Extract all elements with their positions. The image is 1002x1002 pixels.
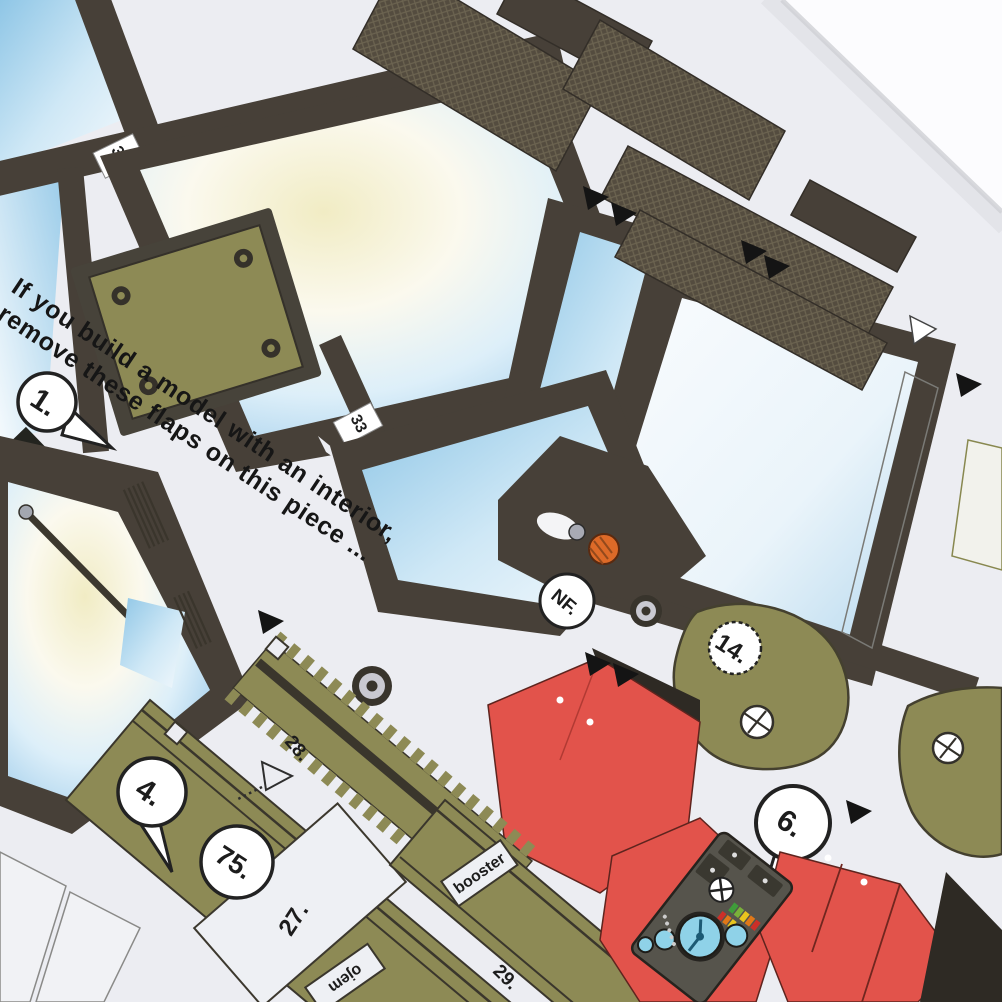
handle-pivot: [569, 524, 585, 540]
sheet-scene: 33 33: [0, 0, 1002, 1002]
photo-of-paper-model-sheet: 33 33: [0, 0, 1002, 1002]
rivet: [587, 719, 594, 726]
grommet-washer: [630, 595, 662, 627]
rivet: [825, 855, 832, 862]
rivet: [557, 697, 564, 704]
signal-light: [589, 534, 619, 564]
grommet-washer: [352, 666, 392, 706]
rivet: [861, 879, 868, 886]
